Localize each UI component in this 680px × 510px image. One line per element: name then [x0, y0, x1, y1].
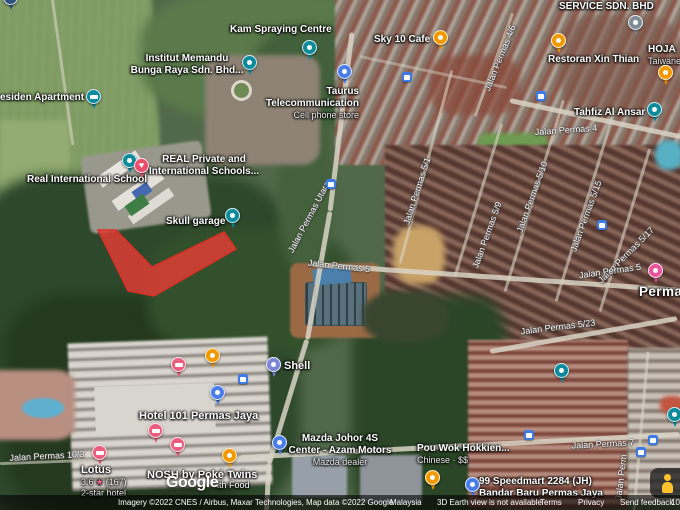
- bus-stop-icon[interactable]: [326, 179, 336, 189]
- place-marker-lotus[interactable]: [92, 445, 107, 466]
- bus-stop-icon[interactable]: [402, 72, 412, 82]
- poi-label-hoja[interactable]: HOJA Taiwane: [648, 44, 680, 66]
- place-marker-mazda[interactable]: [272, 435, 287, 456]
- place-icon: [554, 363, 569, 378]
- bus-stop-icon[interactable]: [524, 430, 534, 440]
- car-dealer-icon: [272, 435, 287, 450]
- restaurant-icon: [222, 448, 237, 463]
- poi-category: Chinese · $$: [417, 455, 510, 466]
- poi-label-line: HOJA: [648, 44, 676, 55]
- place-marker-hoja[interactable]: [658, 65, 673, 86]
- country-label: Malaysia: [390, 498, 422, 507]
- poi-label-mazda[interactable]: Mazda Johor 4S Center - Azam Motors Mazd…: [284, 433, 396, 467]
- bus-stop-icon[interactable]: [536, 91, 546, 101]
- poi-label-service-sdn-bhd[interactable]: SERVICE SDN. BHD: [559, 1, 654, 13]
- poi-label-line: International Schools...: [149, 166, 259, 177]
- poi-label-restoran-xin-thian[interactable]: Restoran Xin Thian: [548, 54, 639, 66]
- bus-stop-icon[interactable]: [597, 220, 607, 230]
- place-marker-restaurant-b[interactable]: [222, 448, 237, 469]
- cafe-icon: [433, 30, 448, 45]
- phone-store-icon: [337, 64, 352, 79]
- terrain-roundabout: [231, 80, 252, 101]
- place-marker-sky-10-cafe[interactable]: [433, 30, 448, 51]
- poi-label-line: Institut Memandu: [146, 53, 229, 64]
- pegman-control[interactable]: [650, 468, 680, 498]
- place-marker-taurus[interactable]: [337, 64, 352, 85]
- imagery-credit: Imagery ©2022 CNES / Airbus, Maxar Techn…: [118, 498, 393, 507]
- bus-stop-icon[interactable]: [238, 374, 248, 384]
- poi-label-line: Bunga Raya Sdn. Bhd...: [131, 65, 244, 76]
- place-marker-real-school-saved[interactable]: [134, 158, 149, 179]
- restaurant-icon: [425, 470, 440, 485]
- place-marker-institut-memandu[interactable]: [242, 55, 257, 76]
- place-marker-hotel-b[interactable]: [148, 423, 163, 444]
- bus-stop-icon[interactable]: [636, 447, 646, 457]
- place-marker-grocery[interactable]: [210, 385, 225, 406]
- poi-label-line: Pou Wok Hokkien...: [417, 443, 510, 454]
- place-marker-restoran-xin-thian[interactable]: [551, 33, 566, 54]
- poi-label-line: Taurus: [326, 86, 359, 97]
- spray-icon: [302, 40, 317, 55]
- pegman-icon: [664, 474, 671, 481]
- place-icon: [667, 407, 680, 422]
- place-marker-residen-apartment[interactable]: [86, 89, 101, 110]
- restaurant-icon: [551, 33, 566, 48]
- place-marker-teal-mid[interactable]: [554, 363, 569, 384]
- place-marker-hotel-a[interactable]: [171, 357, 186, 378]
- convenience-store-icon: [465, 477, 480, 492]
- poi-label-skull-garage[interactable]: Skull garage: [166, 216, 225, 228]
- school-icon: [647, 102, 662, 117]
- place-marker-service-sdn-bhd[interactable]: [628, 15, 643, 36]
- gas-station-icon: [266, 357, 281, 372]
- terrain-pool-bottomleft: [22, 398, 64, 418]
- poi-label-tahfiz-al-ansar[interactable]: Tahfiz Al Ansar: [574, 107, 645, 119]
- lodging-icon: [148, 423, 163, 438]
- lodging-icon: [92, 445, 107, 460]
- lodging-icon: [86, 89, 101, 104]
- review-count: (167): [106, 477, 127, 487]
- pegman-icon-body: [662, 482, 673, 493]
- poi-label-kam-spraying-centre[interactable]: Kam Spraying Centre: [230, 24, 326, 36]
- poi-label-nosh-category-partial: lth Food: [217, 480, 250, 491]
- poi-category: Mazda dealer: [284, 457, 396, 468]
- restaurant-icon: [205, 348, 220, 363]
- poi-category: Cell phone store: [262, 110, 359, 121]
- poi-label-shell[interactable]: Shell: [284, 360, 310, 373]
- poi-label-sky-10-cafe[interactable]: Sky 10 Cafe: [374, 34, 430, 46]
- place-marker-skull-garage[interactable]: [225, 208, 240, 229]
- service-icon: [628, 15, 643, 30]
- google-maps-satellite-view: Jalan Permas 4/6 Jalan Permas 4 Jalan Pe…: [0, 0, 680, 510]
- terrain-pond: [363, 292, 448, 342]
- garage-icon: [225, 208, 240, 223]
- poi-rating-row: 3.6(167): [81, 477, 127, 488]
- poi-label-line: Mazda Johor 4S: [302, 433, 378, 444]
- place-marker-shell[interactable]: [266, 357, 281, 378]
- privacy-link[interactable]: Privacy: [578, 498, 604, 507]
- shopping-icon: [648, 263, 663, 278]
- earth-view-notice: 3D Earth view is not available: [437, 498, 542, 507]
- poi-label-institut-memandu[interactable]: Institut Memandu Bunga Raya Sdn. Bhd...: [128, 53, 246, 77]
- poi-label-residen-apartment[interactable]: esiden Apartment: [0, 92, 84, 104]
- poi-label-taurus-telecommunication[interactable]: Taurus Telecommunication Cell phone stor…: [262, 86, 359, 120]
- place-marker-kam-spraying[interactable]: [302, 40, 317, 61]
- poi-label-real-private-schools[interactable]: REAL Private and International Schools..…: [143, 154, 265, 178]
- place-marker-tahfiz-al-ansar[interactable]: [647, 102, 662, 123]
- terms-link[interactable]: Terms: [540, 498, 562, 507]
- lodging-icon: [171, 357, 186, 372]
- scale-label-partial: 10: [671, 498, 680, 507]
- heart-icon: [134, 158, 149, 173]
- google-logo[interactable]: Google: [166, 474, 218, 492]
- poi-label-line: Telecommunication: [266, 98, 359, 109]
- grocery-icon: [210, 385, 225, 400]
- place-icon: [3, 0, 18, 5]
- poi-label-hotel-101[interactable]: Hotel 101 Permas Jaya: [139, 410, 258, 423]
- driving-school-icon: [242, 55, 257, 70]
- place-marker-restaurant-a[interactable]: [205, 348, 220, 369]
- place-marker-pou-wok[interactable]: [425, 470, 440, 491]
- place-marker-hotel-c[interactable]: [170, 437, 185, 458]
- poi-label-line: 99 Speedmart 2284 (JH): [479, 476, 592, 487]
- restaurant-icon: [658, 65, 673, 80]
- bus-stop-icon[interactable]: [648, 435, 658, 445]
- poi-label-lotus[interactable]: Lotus 3.6(167) 2-star hotel: [81, 464, 127, 498]
- star-icon: [94, 477, 106, 487]
- poi-label-line: Center - Azam Motors: [289, 445, 392, 456]
- send-feedback-link[interactable]: Send feedback: [620, 498, 673, 507]
- poi-label-line: REAL Private and: [162, 154, 246, 165]
- rating-value: 3.6: [81, 477, 94, 487]
- locality-label-permas[interactable]: Permas: [639, 284, 680, 300]
- terrain-pool-topright: [655, 140, 680, 170]
- place-marker-permas-shopping[interactable]: [648, 263, 663, 284]
- poi-label-pou-wok[interactable]: Pou Wok Hokkien... Chinese · $$: [417, 443, 510, 465]
- lodging-icon: [170, 437, 185, 452]
- place-marker-teal-right-edge[interactable]: [667, 407, 680, 428]
- place-marker-corner-cut[interactable]: [3, 0, 18, 11]
- poi-label-real-international-school[interactable]: Real International School: [27, 174, 147, 186]
